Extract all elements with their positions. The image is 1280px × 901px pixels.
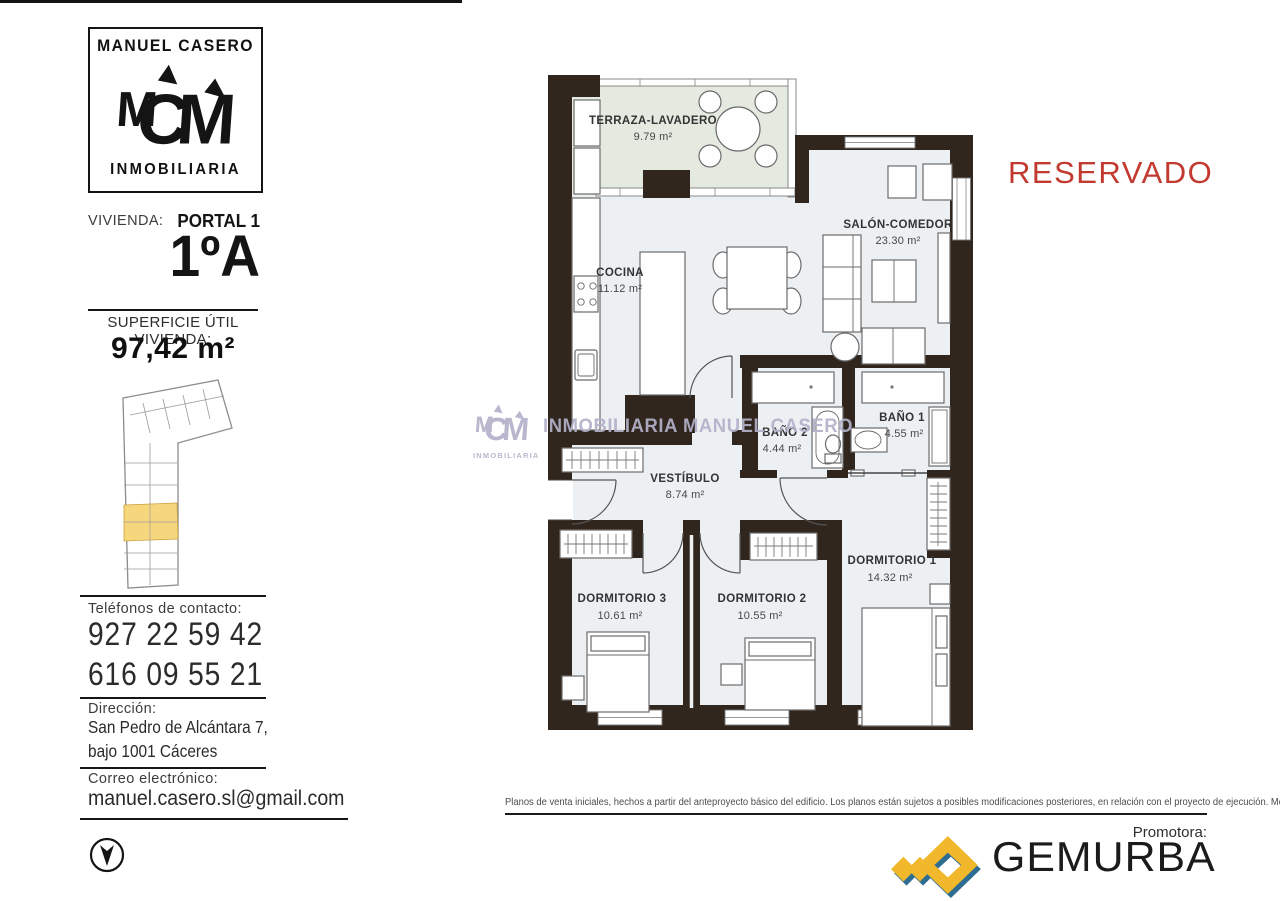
- agency-logo-box: MANUEL CASERO M C M INMOBILIARIA: [88, 27, 263, 193]
- mcm-logo-icon: M C M: [112, 58, 240, 162]
- footer-divider: [505, 813, 1207, 815]
- svg-text:C: C: [483, 411, 509, 447]
- divider: [80, 595, 266, 597]
- status-reserved: RESERVADO: [1008, 155, 1213, 191]
- phone-number-1: 927 22 59 42: [88, 616, 263, 653]
- room-area-bano1: 4.55 m²: [885, 428, 924, 440]
- room-area-vestibulo: 8.74 m²: [666, 489, 705, 501]
- svg-text:M: M: [474, 412, 494, 437]
- divider: [80, 767, 266, 769]
- superficie-value: 97,42 m²: [84, 332, 262, 366]
- room-label-dorm3: DORMITORIO 3: [578, 593, 667, 605]
- north-arrow-icon: [88, 836, 128, 876]
- phone-number-2: 616 09 55 21: [88, 656, 263, 693]
- room-area-salon: 23.30 m²: [875, 235, 920, 247]
- room-label-dorm2: DORMITORIO 2: [718, 593, 807, 605]
- room-label-vestibulo: VESTÍBULO: [650, 472, 719, 485]
- email-value: manuel.casero.sl@gmail.com: [88, 787, 344, 811]
- disclaimer-text: Planos de venta iniciales, hechos a part…: [505, 797, 1280, 808]
- phones-label: Teléfonos de contacto:: [88, 601, 242, 617]
- brochure-page: MANUEL CASERO M C M INMOBILIARIA VIVIEND…: [0, 0, 1280, 901]
- mcm-watermark-logo-icon: M C M: [473, 402, 531, 448]
- gemurba-logo-icon: [888, 834, 988, 898]
- scan-artifact-line: [0, 0, 462, 3]
- room-area-dorm1: 14.32 m²: [867, 572, 912, 584]
- room-area-cocina: 11.12 m²: [598, 283, 642, 295]
- floor-plan: TERRAZA-LAVADERO 9.79 m² SALÓN-COMEDOR 2…: [540, 60, 990, 740]
- room-area-dorm3: 10.61 m²: [597, 610, 642, 622]
- room-area-dorm2: 10.55 m²: [737, 610, 782, 622]
- site-plan-thumbnail: [58, 373, 293, 595]
- promotora-name: GEMURBA: [992, 833, 1216, 881]
- address-line-2: bajo 1001 Cáceres: [88, 741, 217, 762]
- agency-name-top: MANUEL CASERO: [94, 37, 256, 56]
- room-label-bano2: BAÑO 2: [762, 426, 808, 439]
- room-area-bano2: 4.44 m²: [763, 443, 802, 455]
- address-line-1: San Pedro de Alcántara 7,: [88, 717, 268, 738]
- divider: [88, 309, 258, 311]
- room-area-terraza: 9.79 m²: [634, 131, 673, 143]
- room-label-terraza: TERRAZA-LAVADERO: [589, 115, 717, 127]
- room-label-salon: SALÓN-COMEDOR: [843, 218, 953, 231]
- room-label-cocina: COCINA: [596, 267, 644, 279]
- room-label-dorm1: DORMITORIO 1: [848, 555, 937, 567]
- agency-name-bottom: INMOBILIARIA: [94, 161, 256, 179]
- watermark-sub: INMOBILIARIA: [473, 451, 539, 460]
- address-label: Dirección:: [88, 701, 156, 717]
- divider: [80, 697, 266, 699]
- unit-value: 1ºA: [97, 229, 260, 284]
- svg-text:M: M: [501, 411, 530, 447]
- divider: [80, 818, 348, 820]
- email-label: Correo electrónico:: [88, 771, 218, 787]
- room-label-bano1: BAÑO 1: [879, 411, 925, 424]
